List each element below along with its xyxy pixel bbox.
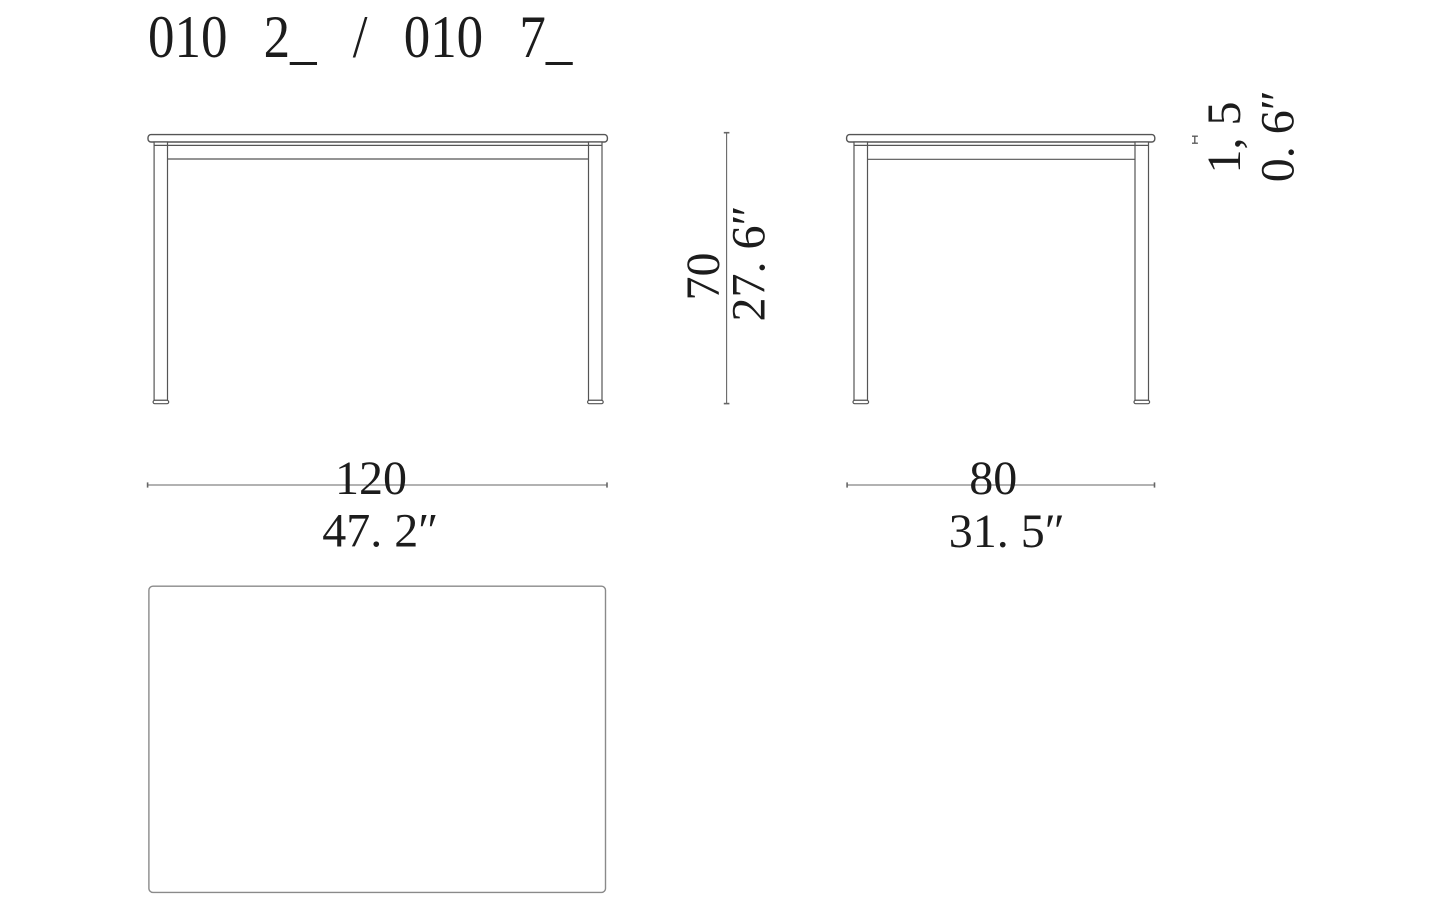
svg-text:010 2_ / 010 7_: 010 2_ / 010 7_	[148, 5, 573, 71]
svg-text:31. 5″: 31. 5″	[949, 505, 1065, 558]
svg-text:80: 80	[969, 452, 1017, 505]
svg-text:0. 6″: 0. 6″	[1252, 90, 1305, 182]
svg-text:47. 2″: 47. 2″	[322, 505, 438, 558]
svg-text:27. 6″: 27. 6″	[723, 206, 776, 322]
svg-text:1, 5: 1, 5	[1198, 102, 1251, 174]
svg-text:120: 120	[335, 452, 407, 505]
